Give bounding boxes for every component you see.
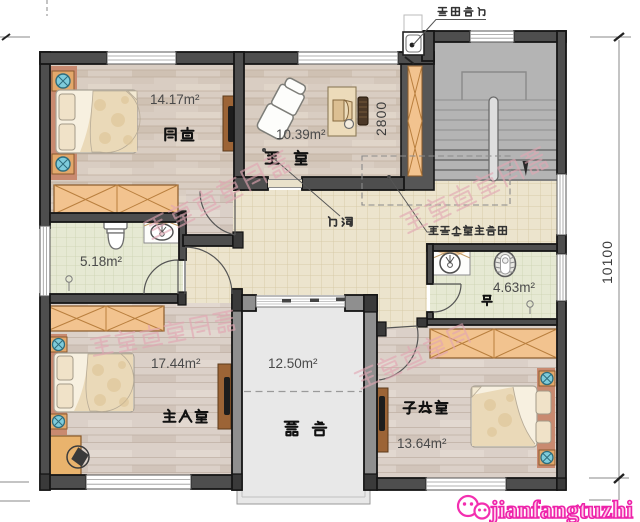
svg-text:5.18m²: 5.18m²	[80, 254, 123, 269]
svg-text:4.63m²: 4.63m²	[493, 280, 536, 295]
svg-text:2800: 2800	[373, 101, 389, 136]
svg-text:10.39m²: 10.39m²	[276, 127, 326, 142]
svg-text:13.64m²: 13.64m²	[397, 436, 447, 451]
svg-text:jianfangtuzhi: jianfangtuzhi	[489, 497, 633, 522]
svg-text:14.17m²: 14.17m²	[150, 92, 200, 107]
svg-text:10100: 10100	[599, 240, 615, 284]
svg-text:12.50m²: 12.50m²	[268, 356, 318, 371]
svg-text:17.44m²: 17.44m²	[151, 356, 201, 371]
